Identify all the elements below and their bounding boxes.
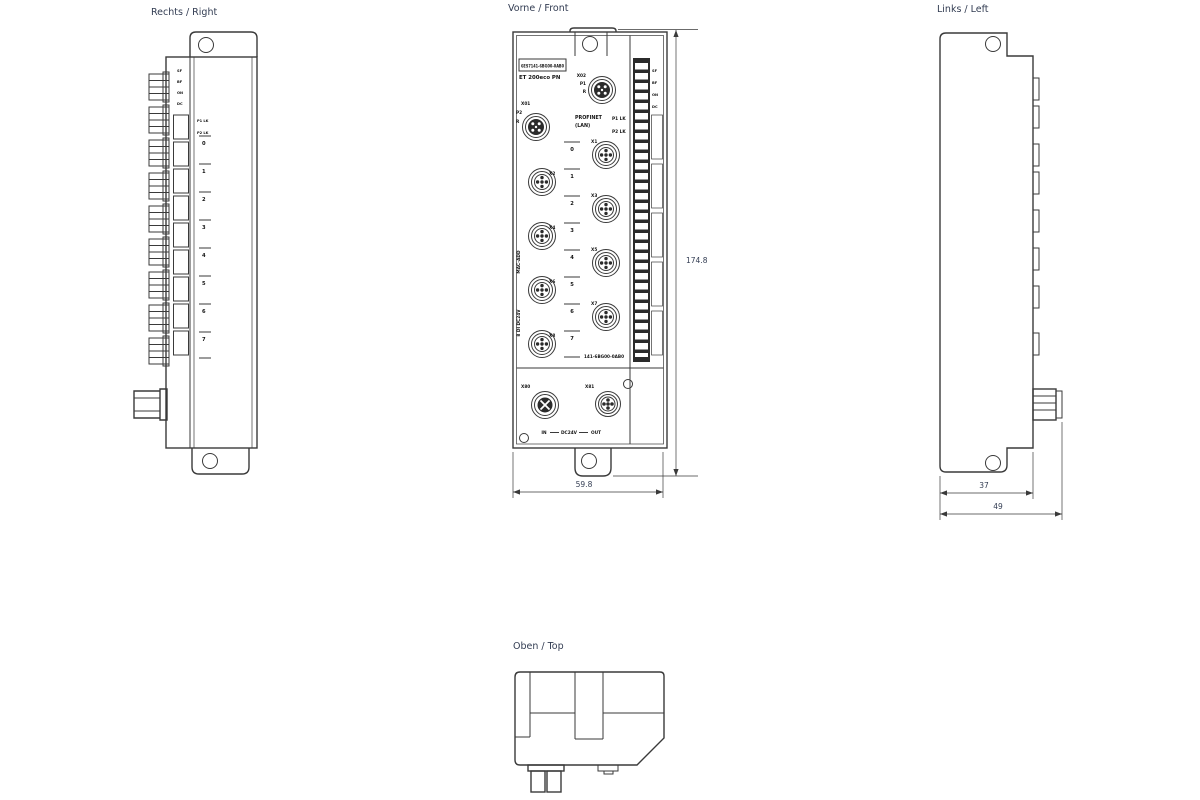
port-label: X01: [521, 101, 530, 107]
product-name: ET 200eco PN: [519, 75, 561, 81]
channel-number: 5: [570, 282, 574, 288]
side-print-lower: 8 DI DC24V: [516, 309, 522, 337]
connector-bump: [1033, 106, 1039, 128]
view-front: Vorne / Front 6ES7141-6BG00-0AB0 ET 200e…: [508, 3, 708, 498]
channel-number: 2: [202, 197, 206, 203]
led-label: P2 LK: [612, 129, 626, 135]
mounting-hole-top: [986, 37, 1001, 52]
connector-bump: [1033, 210, 1039, 232]
dimension-height-value: 174.8: [686, 256, 708, 265]
terminal-window: [174, 277, 189, 301]
dimension-depth-total-value: 49: [993, 502, 1003, 511]
port-label: X1: [591, 139, 597, 145]
power-caption-voltage: DC24V: [561, 430, 578, 436]
article-number: 6ES7141-6BG00-0AB0: [521, 64, 564, 70]
connector-bump: [1033, 248, 1039, 270]
profinet-label: PROFINET: [575, 115, 603, 121]
led-mark: ON: [177, 91, 183, 95]
link-label: P1 LK: [197, 119, 209, 123]
mounting-hole-bottom: [986, 456, 1001, 471]
channel-number: 6: [570, 309, 574, 315]
side-print-upper: MAC-ADD: [516, 250, 522, 274]
dimension-drawing-page: Rechts / Right: [0, 0, 1200, 800]
right-side-connectors: [134, 72, 169, 420]
left-dimension-total-depth: 49: [940, 422, 1062, 520]
led-label: P1 LK: [612, 116, 626, 122]
terminal-window: [174, 115, 189, 139]
profinet-label: (LAN): [575, 123, 590, 129]
screw-hole: [520, 434, 529, 443]
view-top: Oben / Top: [513, 641, 664, 792]
dimension-drawing: Rechts / Right: [0, 0, 1200, 800]
dimension-depth-body-value: 37: [979, 481, 989, 490]
channel-number: 6: [202, 309, 206, 315]
connector-bump: [1033, 78, 1039, 100]
left-outline: [940, 33, 1062, 472]
power-connector-top: [528, 765, 564, 771]
device-body-top: [515, 672, 664, 765]
port-label: X02: [577, 73, 586, 79]
view-right: Rechts / Right: [134, 7, 257, 474]
terminal-window: [174, 250, 189, 274]
io-port-x5: [593, 250, 620, 277]
power-caption-in: IN: [541, 430, 547, 436]
terminal-window: [174, 142, 189, 166]
channel-number: 3: [202, 225, 206, 231]
port-label: X2: [549, 171, 555, 177]
screw-hole: [624, 380, 633, 389]
port-label: R: [583, 89, 587, 95]
port-label: P2: [516, 110, 522, 116]
front-io-ports: X1 X3 X5 X7 X2 X4 X6 X8: [529, 139, 620, 358]
io-port-x3: [593, 196, 620, 223]
port-label: X4: [549, 225, 555, 231]
mounting-hole-top: [583, 37, 598, 52]
channel-number: 0: [202, 141, 206, 147]
mounting-tab-bottom: [192, 448, 249, 474]
power-connector-tip: [1056, 391, 1062, 418]
mounting-hole-top: [199, 38, 214, 53]
front-dimension-width: 59.8: [513, 452, 663, 498]
dimension-width-value: 59.8: [576, 480, 593, 489]
channel-number: 7: [202, 337, 206, 343]
terminal-window: [174, 196, 189, 220]
led-mark: DC: [177, 102, 183, 106]
port-label: X3: [591, 193, 597, 199]
port-label: P1: [580, 81, 586, 87]
view-front-title: Vorne / Front: [508, 3, 569, 14]
mounting-hole-bottom: [203, 454, 218, 469]
channel-number: 7: [570, 336, 574, 342]
power-out-connector: [596, 392, 621, 417]
terminal-window: [174, 223, 189, 247]
connector-bump: [1033, 144, 1039, 166]
view-left-title: Links / Left: [937, 4, 989, 15]
front-power-section: X80 X81 IN DC24V OUT: [521, 384, 621, 436]
small-connector-top: [598, 765, 618, 771]
led-mark: SF: [652, 69, 658, 73]
right-channel-scale: 0 1 2 3 4 5 6 7: [199, 136, 211, 358]
channel-number: 0: [570, 147, 574, 153]
power-in-label: X80: [521, 384, 530, 390]
connector-bump: [1033, 333, 1039, 355]
channel-number: 1: [202, 169, 206, 175]
power-caption-out: OUT: [591, 430, 601, 436]
port-label: X6: [549, 279, 555, 285]
channel-number: 2: [570, 201, 574, 207]
device-body-left: [940, 33, 1033, 472]
led-mark: ON: [652, 93, 658, 97]
top-outline: [515, 672, 664, 792]
link-label: P2 LK: [197, 131, 209, 135]
device-body-right: [166, 57, 257, 448]
channel-number: 5: [202, 281, 206, 287]
led-mark: BF: [177, 80, 183, 84]
led-mark: SF: [177, 69, 183, 73]
mounting-tab-top: [190, 32, 257, 57]
mounting-hole-bottom: [582, 454, 597, 469]
front-dimension-height: 174.8: [613, 30, 708, 477]
channel-number: 3: [570, 228, 574, 234]
port-label: X8: [549, 333, 555, 339]
io-port-x1: [593, 142, 620, 169]
right-outline: [166, 32, 257, 474]
left-dimension-body-depth: 37: [940, 452, 1033, 520]
mounting-tab-bottom: [575, 448, 611, 476]
connector-bump: [1033, 286, 1039, 308]
port-label: X5: [591, 247, 597, 253]
front-led-strip: SF BF ON DC: [630, 36, 663, 445]
connector-bump: [1033, 172, 1039, 194]
view-top-title: Oben / Top: [513, 641, 564, 652]
channel-number: 4: [570, 255, 574, 261]
led-mark: DC: [652, 105, 658, 109]
power-in-connector: [532, 392, 559, 419]
front-profinet-ports: X01 P2 R X02 P1 R PROFINET (LAN) P1 LK P…: [516, 73, 626, 141]
profinet-port-1-connector: [589, 77, 616, 104]
terminal-window: [174, 169, 189, 193]
channel-number: 4: [202, 253, 206, 259]
view-left: Links / Left 37: [937, 4, 1062, 520]
port-label: R: [516, 119, 520, 125]
bottom-print: 141-6BG00-0AB0: [584, 354, 624, 360]
view-right-title: Rechts / Right: [151, 7, 217, 18]
power-connector-profile: [1033, 389, 1056, 420]
terminal-window: [174, 331, 189, 355]
led-mark: BF: [652, 81, 658, 85]
port-label: X7: [591, 301, 597, 307]
terminal-window: [174, 304, 189, 328]
power-out-label: X81: [585, 384, 594, 390]
profinet-port-2-connector: [523, 114, 550, 141]
front-channel-scale: 0 1 2 3 4 5 6 7: [564, 142, 580, 357]
power-connector-profile: [134, 389, 167, 420]
io-port-x7: [593, 304, 620, 331]
channel-number: 1: [570, 174, 574, 180]
